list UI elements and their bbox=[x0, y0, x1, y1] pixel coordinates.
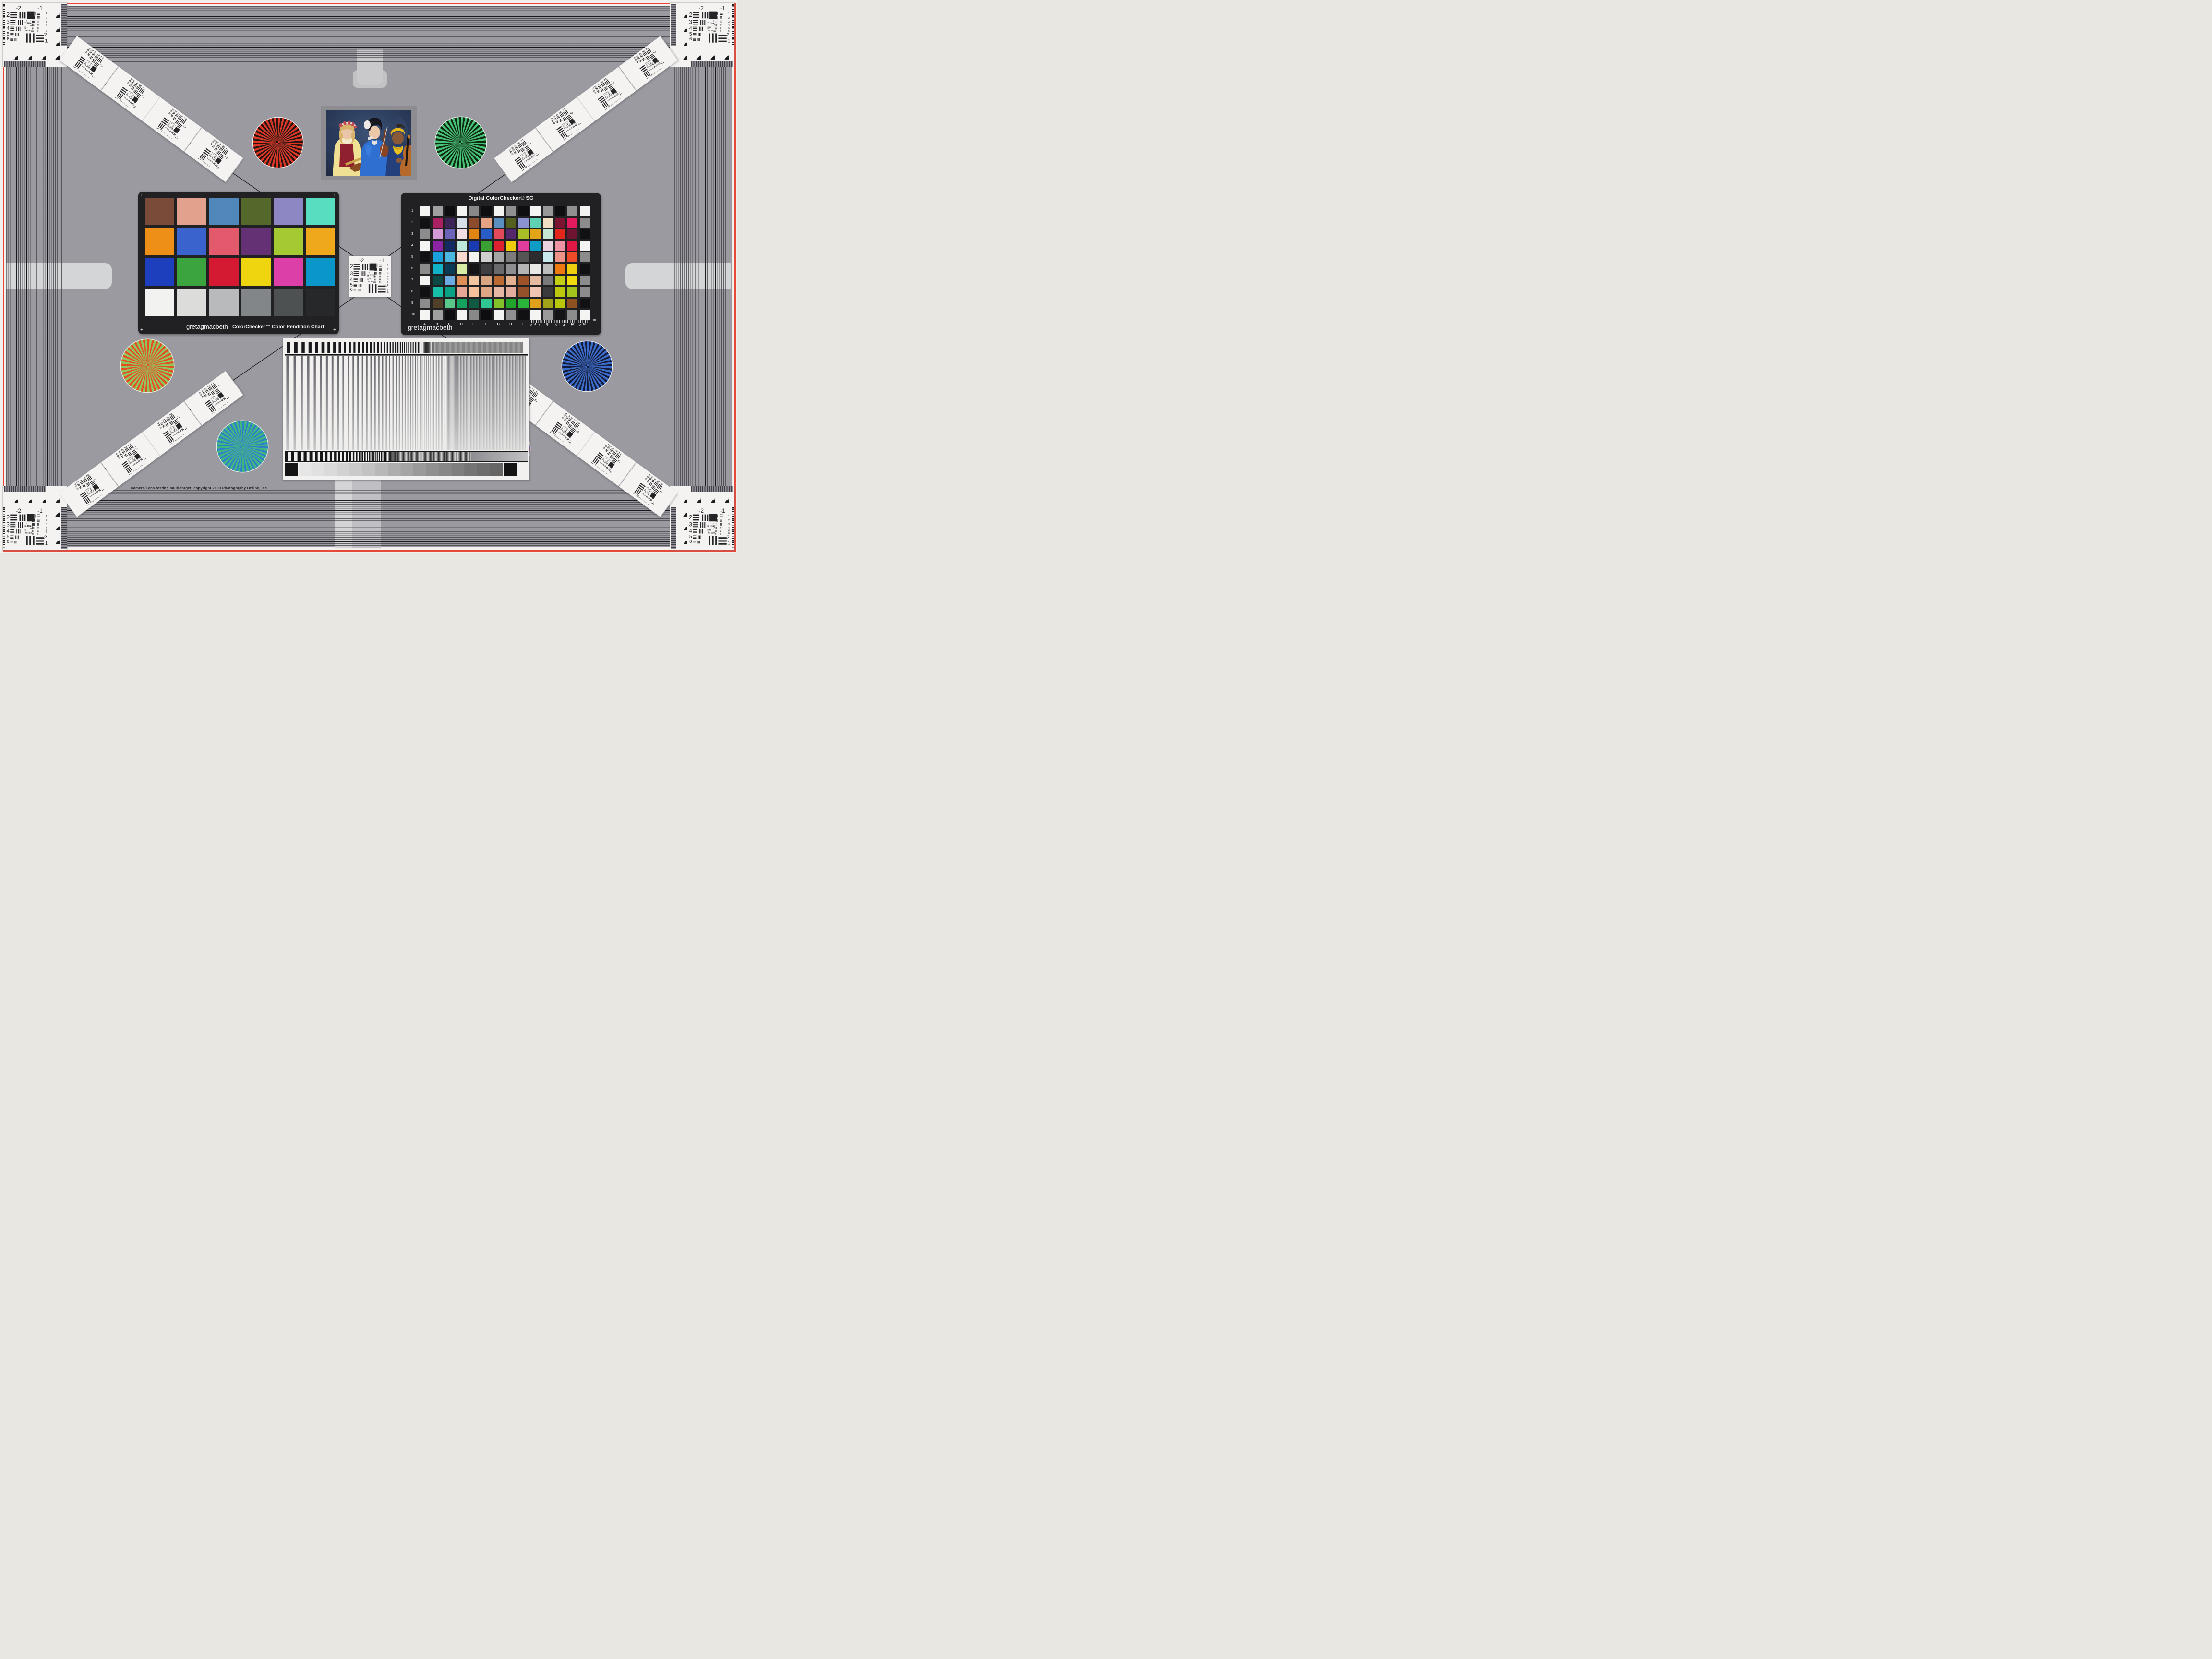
sg-patch-9L bbox=[555, 299, 565, 308]
sg-patch-2I bbox=[518, 218, 529, 228]
sg-patch-6L bbox=[555, 264, 565, 274]
sg-patch-10L bbox=[555, 310, 565, 320]
sg-patch-5F bbox=[481, 252, 492, 262]
sg-patch-1M bbox=[567, 206, 577, 216]
sg-patch-7I bbox=[518, 276, 529, 285]
sg-patch-10B bbox=[433, 310, 443, 320]
sg-patch-4C bbox=[445, 241, 455, 251]
corner-plus-br: + bbox=[333, 327, 336, 333]
sg-patch-10N bbox=[580, 310, 590, 320]
sg-patch-2H bbox=[506, 218, 516, 228]
sg-patch-1J bbox=[530, 206, 541, 216]
corner-plus-tl: + bbox=[140, 192, 143, 198]
sg-patch-5J bbox=[530, 252, 541, 262]
sg-patch-5L bbox=[555, 252, 565, 262]
sg-patch-4H bbox=[506, 241, 516, 251]
sg-patch-4J bbox=[530, 241, 541, 251]
cc24-patch-4-1 bbox=[145, 289, 174, 316]
sg-patch-10K bbox=[543, 310, 553, 320]
sg-patch-2C bbox=[445, 218, 455, 228]
sg-patch-1F bbox=[481, 206, 492, 216]
sg-patch-10G bbox=[494, 310, 504, 320]
colorchecker-brand: gretagmacbeth bbox=[186, 323, 228, 330]
usaf-target bbox=[688, 507, 732, 549]
sg-patch-10I bbox=[518, 310, 529, 320]
sg-patch-1A bbox=[420, 206, 430, 216]
cc24-patch-4-3 bbox=[209, 289, 239, 316]
edge-tick-ruler bbox=[3, 507, 5, 549]
cc24-patch-3-2 bbox=[177, 258, 206, 286]
red-siemens-star bbox=[252, 116, 304, 169]
blue-green-siemens-star bbox=[216, 420, 269, 473]
sg-patch-5E bbox=[469, 252, 479, 262]
corner-plus-bl: + bbox=[140, 327, 143, 333]
sg-patch-10A bbox=[420, 310, 430, 320]
sg-patch-3N bbox=[580, 229, 590, 239]
sg-patch-1N bbox=[580, 206, 590, 216]
sg-patch-1E bbox=[469, 206, 479, 216]
sg-row-label: 5 bbox=[411, 255, 413, 259]
cc24-patch-4-5 bbox=[274, 289, 303, 316]
cc24-patch-2-6 bbox=[306, 228, 335, 255]
sg-column-label: I bbox=[522, 323, 523, 326]
sg-patch-7J bbox=[530, 276, 541, 285]
sg-column-label: D bbox=[460, 323, 463, 326]
sg-patch-6E bbox=[469, 264, 479, 274]
cc24-patch-1-4 bbox=[241, 198, 271, 225]
sg-patch-6B bbox=[433, 264, 443, 274]
sg-patch-8A bbox=[420, 287, 430, 297]
cc24-patch-3-4 bbox=[241, 258, 271, 286]
sg-row-label: 6 bbox=[411, 267, 413, 270]
sg-patch-2E bbox=[469, 218, 479, 228]
cc24-patch-3-3 bbox=[209, 258, 239, 286]
sg-patch-6G bbox=[494, 264, 504, 274]
stripe-block-vertical bbox=[671, 4, 676, 46]
sg-patch-1G bbox=[494, 206, 504, 216]
sg-patch-7G bbox=[494, 276, 504, 285]
sg-patch-9D bbox=[457, 299, 467, 308]
sg-patch-2G bbox=[494, 218, 504, 228]
sg-patch-7H bbox=[506, 276, 516, 285]
colorchecker-24-chart: gretagmacbeth ColorChecker™ Color Rendit… bbox=[138, 192, 339, 334]
sg-patch-8B bbox=[433, 287, 443, 297]
sg-patch-3H bbox=[506, 229, 516, 239]
sg-patch-5K bbox=[543, 252, 553, 262]
sg-patch-9M bbox=[567, 299, 577, 308]
sg-patch-2B bbox=[433, 218, 443, 228]
colorchecker-title: ColorChecker™ Color Rendition Chart bbox=[232, 324, 324, 330]
cc24-patch-3-5 bbox=[274, 258, 303, 286]
sg-patch-6M bbox=[567, 264, 577, 274]
sg-patch-5A bbox=[420, 252, 430, 262]
sg-patch-9C bbox=[445, 299, 455, 308]
sg-patch-5D bbox=[457, 252, 467, 262]
sg-patch-2L bbox=[555, 218, 565, 228]
frequency-sweep-panel bbox=[283, 338, 529, 480]
cc24-patch-1-2 bbox=[177, 198, 206, 225]
sg-patch-3K bbox=[543, 229, 553, 239]
sg-patch-3J bbox=[530, 229, 541, 239]
sg-patch-4I bbox=[518, 241, 529, 251]
cc24-patch-4-2 bbox=[177, 289, 206, 316]
stripe-block-horizontal bbox=[4, 61, 46, 67]
sg-patch-9H bbox=[506, 299, 516, 308]
sg-row-label: 8 bbox=[411, 290, 413, 293]
sg-patch-8M bbox=[567, 287, 577, 297]
orange-green-siemens-star bbox=[120, 338, 175, 394]
sg-patch-2M bbox=[567, 218, 577, 228]
sg-column-label: E bbox=[472, 323, 475, 326]
sg-patch-7N bbox=[580, 276, 590, 285]
cc24-patch-2-5 bbox=[274, 228, 303, 255]
sg-patch-4M bbox=[567, 241, 577, 251]
cc24-patch-2-1 bbox=[145, 228, 174, 255]
sg-row-label: 4 bbox=[411, 244, 413, 247]
green-siemens-star bbox=[434, 116, 488, 169]
sg-patch-9N bbox=[580, 299, 590, 308]
sg-patch-9A bbox=[420, 299, 430, 308]
sg-patch-7M bbox=[567, 276, 577, 285]
sg-patch-8C bbox=[445, 287, 455, 297]
sg-row-label: 3 bbox=[411, 232, 413, 236]
corner-target-bottom-left bbox=[3, 486, 67, 550]
sg-brand: gretagmacbeth bbox=[408, 324, 452, 331]
sg-row-label: 1 bbox=[411, 209, 413, 213]
blue-siemens-star bbox=[561, 340, 613, 393]
sg-patch-9B bbox=[433, 299, 443, 308]
sg-patch-4K bbox=[543, 241, 553, 251]
sg-patch-7K bbox=[543, 276, 553, 285]
stripe-block-vertical bbox=[61, 4, 67, 46]
sg-patch-7C bbox=[445, 276, 455, 285]
sg-patch-7F bbox=[481, 276, 492, 285]
sg-row-label: 7 bbox=[411, 278, 413, 282]
sg-patch-2F bbox=[481, 218, 492, 228]
sg-patch-5M bbox=[567, 252, 577, 262]
sg-patch-3B bbox=[433, 229, 443, 239]
sg-patch-6C bbox=[445, 264, 455, 274]
sg-patch-8K bbox=[543, 287, 553, 297]
sg-patch-5N bbox=[580, 252, 590, 262]
edge-tick-ruler bbox=[3, 4, 5, 46]
sg-ruler-label: 2 bbox=[547, 324, 549, 327]
sg-patch-7B bbox=[433, 276, 443, 285]
portrait-photo bbox=[326, 110, 411, 176]
digital-colorchecker-sg-chart: Digital ColorChecker® SG 12345678910ABCD… bbox=[401, 193, 601, 335]
sg-patch-1I bbox=[518, 206, 529, 216]
sg-patch-4N bbox=[580, 241, 590, 251]
sg-ruler-label: 4 bbox=[563, 324, 565, 327]
sg-patch-5C bbox=[445, 252, 455, 262]
sg-patch-6H bbox=[506, 264, 516, 274]
sg-patch-3C bbox=[445, 229, 455, 239]
sg-patch-9J bbox=[530, 299, 541, 308]
edge-tick-ruler bbox=[732, 4, 734, 46]
sg-patch-10F bbox=[481, 310, 492, 320]
sg-ruler-label: 3 bbox=[555, 324, 557, 327]
sg-patch-3D bbox=[457, 229, 467, 239]
sg-ruler-label: 1 bbox=[539, 324, 541, 327]
sg-patch-8L bbox=[555, 287, 565, 297]
sg-row-label: 2 bbox=[411, 221, 413, 224]
sg-patch-8E bbox=[469, 287, 479, 297]
sg-patch-10M bbox=[567, 310, 577, 320]
sg-patch-7D bbox=[457, 276, 467, 285]
sg-patch-4B bbox=[433, 241, 443, 251]
corner-target-top-right bbox=[670, 3, 734, 67]
cc24-patch-3-1 bbox=[145, 258, 174, 286]
sg-ruler-ticks bbox=[531, 320, 589, 323]
sg-patch-5I bbox=[518, 252, 529, 262]
sg-patch-4E bbox=[469, 241, 479, 251]
cc24-patch-3-6 bbox=[306, 258, 335, 286]
sg-patch-6K bbox=[543, 264, 553, 274]
sg-patch-4D bbox=[457, 241, 467, 251]
sg-patch-2N bbox=[580, 218, 590, 228]
sg-patch-4L bbox=[555, 241, 565, 251]
usaf-target bbox=[5, 507, 49, 549]
sg-patch-7E bbox=[469, 276, 479, 285]
stripe-block-horizontal bbox=[691, 486, 733, 492]
sg-patch-3F bbox=[481, 229, 492, 239]
sg-patch-4G bbox=[494, 241, 504, 251]
stripe-block-horizontal bbox=[691, 61, 733, 67]
sg-patch-8G bbox=[494, 287, 504, 297]
sg-patch-6D bbox=[457, 264, 467, 274]
cc24-patch-2-3 bbox=[209, 228, 239, 255]
sg-patch-10D bbox=[457, 310, 467, 320]
sg-patch-4A bbox=[420, 241, 430, 251]
usaf-target bbox=[688, 4, 732, 46]
sg-patch-1K bbox=[543, 206, 553, 216]
photo-mount bbox=[321, 106, 417, 180]
sg-patch-7A bbox=[420, 276, 430, 285]
cc24-patch-2-2 bbox=[177, 228, 206, 255]
sg-patch-3M bbox=[567, 229, 577, 239]
sg-ruler-unit: mm bbox=[591, 319, 596, 322]
stripe-block-horizontal bbox=[4, 486, 46, 492]
sg-patch-8H bbox=[506, 287, 516, 297]
cc24-patch-1-6 bbox=[306, 198, 335, 225]
stripe-block-vertical bbox=[61, 507, 67, 549]
sg-patch-2J bbox=[530, 218, 541, 228]
sg-patch-8I bbox=[518, 287, 529, 297]
sg-column-label: H bbox=[509, 323, 512, 326]
cc24-patch-1-5 bbox=[274, 198, 303, 225]
sg-patch-10E bbox=[469, 310, 479, 320]
cc24-patch-4-4 bbox=[241, 289, 271, 316]
sg-patch-9E bbox=[469, 299, 479, 308]
sg-patch-10H bbox=[506, 310, 516, 320]
sg-row-label: 10 bbox=[411, 313, 415, 316]
sg-patch-3A bbox=[420, 229, 430, 239]
sg-patch-8D bbox=[457, 287, 467, 297]
cc24-patch-1-3 bbox=[209, 198, 239, 225]
cc24-patch-4-6 bbox=[306, 289, 335, 316]
sg-patch-1B bbox=[433, 206, 443, 216]
sg-patch-6I bbox=[518, 264, 529, 274]
corner-plus-tr: + bbox=[333, 192, 336, 198]
test-chart-canvas: -2-123456123456-2101 bbox=[0, 0, 737, 553]
center-resolution-target bbox=[349, 256, 391, 297]
sg-patch-3E bbox=[469, 229, 479, 239]
sg-ruler-label: 5 bbox=[571, 324, 573, 327]
sg-patch-1L bbox=[555, 206, 565, 216]
sg-patch-8F bbox=[481, 287, 492, 297]
sg-patch-6A bbox=[420, 264, 430, 274]
cc24-patch-2-4 bbox=[241, 228, 271, 255]
corner-target-bottom-right bbox=[670, 486, 734, 550]
stripe-block-vertical bbox=[671, 507, 676, 549]
corner-target-top-left bbox=[3, 3, 67, 67]
sg-patch-5G bbox=[494, 252, 504, 262]
sg-patch-7L bbox=[555, 276, 565, 285]
sg-patch-6J bbox=[530, 264, 541, 274]
sg-column-label: G bbox=[497, 323, 500, 326]
sg-patch-3I bbox=[518, 229, 529, 239]
sg-patch-1C bbox=[445, 206, 455, 216]
sg-patch-3L bbox=[555, 229, 565, 239]
sg-patch-6N bbox=[580, 264, 590, 274]
sg-ruler: 0123456mm bbox=[531, 319, 595, 331]
sg-patch-1D bbox=[457, 206, 467, 216]
edge-tick-ruler bbox=[732, 507, 734, 549]
sg-patch-1H bbox=[506, 206, 516, 216]
sg-patch-3G bbox=[494, 229, 504, 239]
sg-patch-5B bbox=[433, 252, 443, 262]
sg-ruler-label: 6 bbox=[579, 324, 581, 327]
copyright-text: Camera/Lens testing multi-target, copyri… bbox=[131, 486, 268, 490]
sg-patch-9K bbox=[543, 299, 553, 308]
sg-patch-6F bbox=[481, 264, 492, 274]
sg-patch-9F bbox=[481, 299, 492, 308]
sg-title: Digital ColorChecker® SG bbox=[401, 195, 601, 201]
sg-patch-2K bbox=[543, 218, 553, 228]
sg-patch-4F bbox=[481, 241, 492, 251]
sg-row-label: 9 bbox=[411, 301, 413, 305]
sg-patch-8J bbox=[530, 287, 541, 297]
cc24-patch-1-1 bbox=[145, 198, 174, 225]
sg-patch-5H bbox=[506, 252, 516, 262]
sg-patch-2D bbox=[457, 218, 467, 228]
sg-patch-9I bbox=[518, 299, 529, 308]
usaf-target bbox=[5, 4, 49, 46]
sg-ruler-label: 0 bbox=[530, 324, 532, 327]
sg-patch-8N bbox=[580, 287, 590, 297]
sg-column-label: F bbox=[485, 323, 487, 326]
sg-patch-9G bbox=[494, 299, 504, 308]
sg-patch-10J bbox=[530, 310, 541, 320]
sg-patch-2A bbox=[420, 218, 430, 228]
sg-patch-10C bbox=[445, 310, 455, 320]
